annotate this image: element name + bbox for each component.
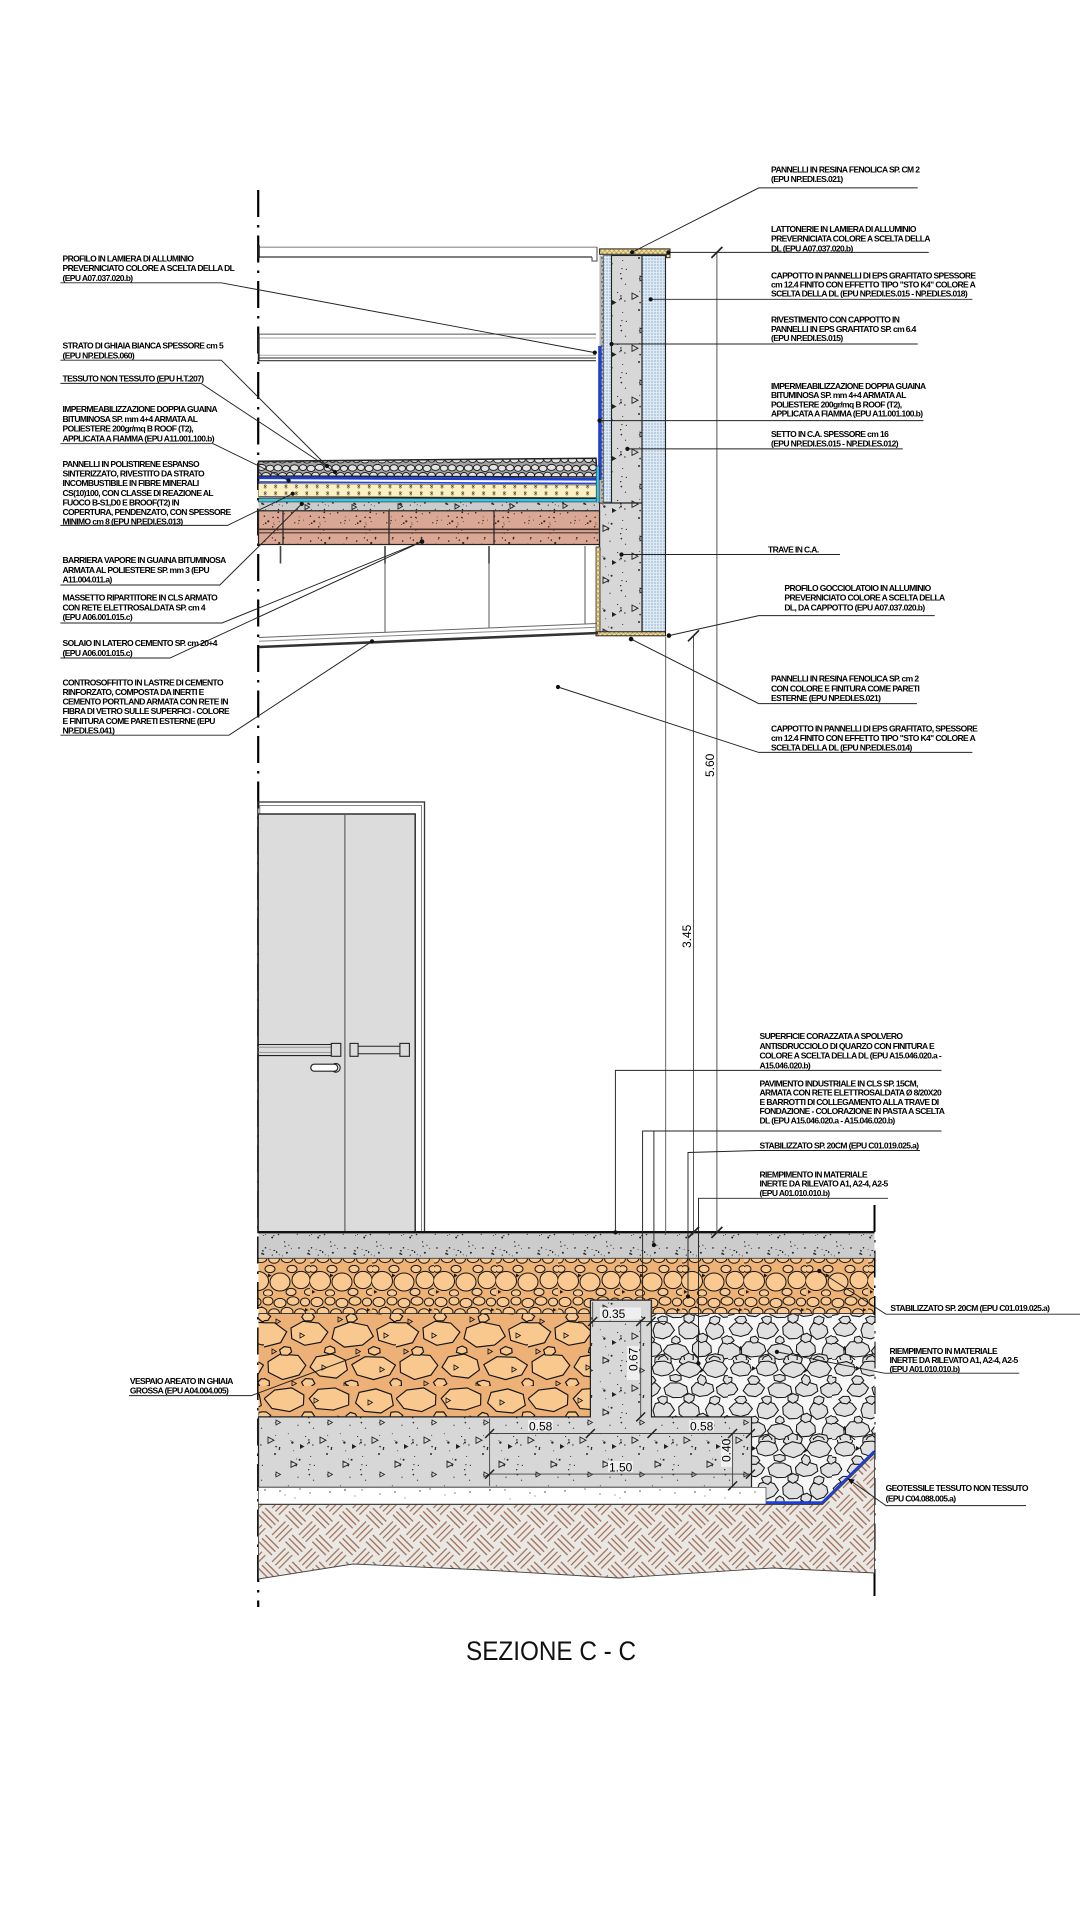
svg-text:PREVERNICIATO COLORE A SCELTA: PREVERNICIATO COLORE A SCELTA DELLA DL bbox=[63, 263, 235, 273]
svg-text:PANNELLI IN POLISTIRENE ESPANS: PANNELLI IN POLISTIRENE ESPANSO bbox=[63, 459, 200, 469]
svg-text:ESTERNE (EPU NP.EDI.ES.021): ESTERNE (EPU NP.EDI.ES.021) bbox=[771, 693, 881, 703]
svg-text:(EPU A06.001.015.c): (EPU A06.001.015.c) bbox=[63, 648, 133, 658]
svg-text:INCOMBUSTIBILE IN FIBRE MINERA: INCOMBUSTIBILE IN FIBRE MINERALI bbox=[63, 478, 199, 488]
svg-text:0.58: 0.58 bbox=[690, 1420, 714, 1434]
svg-text:STABILIZZATO SP. 20CM (EPU C01: STABILIZZATO SP. 20CM (EPU C01.019.025.a… bbox=[890, 1303, 1050, 1313]
svg-text:SCELTA DELLA DL (EPU NP.EDI.E: SCELTA DELLA DL (EPU NP.EDI.ES.015 - NP.… bbox=[771, 289, 968, 299]
svg-text:CON RETE ELETTROSALDATA SP. cm: CON RETE ELETTROSALDATA SP. cm 4 bbox=[63, 602, 206, 612]
svg-text:PROFILO IN LAMIERA DI ALLUMINI: PROFILO IN LAMIERA DI ALLUMINIO bbox=[63, 253, 195, 263]
svg-text:(EPU A07.037.020.b): (EPU A07.037.020.b) bbox=[63, 273, 134, 283]
svg-text:DL (EPU A07.037.020.b): DL (EPU A07.037.020.b) bbox=[771, 243, 854, 253]
svg-text:APPLICATA A FIAMMA (EPU A11.0: APPLICATA A FIAMMA (EPU A11.001.100.b) bbox=[771, 409, 923, 419]
svg-text:PANNELLI IN RESINA FENOLICA SP: PANNELLI IN RESINA FENOLICA SP. cm 2 bbox=[771, 674, 919, 684]
svg-text:0.58: 0.58 bbox=[529, 1420, 553, 1434]
svg-text:STRATO DI GHIAIA BIANCA SPESSO: STRATO DI GHIAIA BIANCA SPESSORE cm 5 bbox=[63, 341, 224, 351]
svg-text:MINIMO cm 8 (EPU NP.EDI.ES.013: MINIMO cm 8 (EPU NP.EDI.ES.013) bbox=[63, 517, 184, 527]
svg-text:(EPU NP.EDI.ES.060): (EPU NP.EDI.ES.060) bbox=[63, 350, 135, 360]
svg-text:5.60: 5.60 bbox=[703, 753, 717, 777]
svg-text:PROFILO GOCCIOLATOIO IN ALLUMI: PROFILO GOCCIOLATOIO IN ALLUMINIO bbox=[784, 583, 931, 593]
svg-text:CON COLORE E FINITURA COME PAR: CON COLORE E FINITURA COME PARETI bbox=[771, 683, 920, 693]
svg-text:3.45: 3.45 bbox=[680, 924, 694, 948]
svg-text:FIBRA DI VETRO SULLE SUPERFICI: FIBRA DI VETRO SULLE SUPERFICI - COLORE bbox=[63, 706, 231, 716]
svg-text:A11.004.011.a): A11.004.011.a) bbox=[63, 575, 113, 585]
svg-text:LATTONERIE IN LAMIERA DI ALLUM: LATTONERIE IN LAMIERA DI ALLUMINIO bbox=[771, 224, 917, 234]
svg-text:GROSSA (EPU A04.004.005): GROSSA (EPU A04.004.005) bbox=[130, 1386, 229, 1396]
svg-text:A15.046.020.b): A15.046.020.b) bbox=[760, 1060, 811, 1070]
svg-text:0.35: 0.35 bbox=[602, 1307, 626, 1321]
svg-text:MASSETTO RIPARTITORE IN CLS AR: MASSETTO RIPARTITORE IN CLS ARMATO bbox=[63, 593, 219, 603]
svg-text:STABILIZZATO SP. 20CM (EPU C01: STABILIZZATO SP. 20CM (EPU C01.019.025.a… bbox=[760, 1140, 920, 1150]
svg-text:TESSUTO NON TESSUTO (EPU H.T.2: TESSUTO NON TESSUTO (EPU H.T.207) bbox=[63, 374, 205, 384]
svg-text:SUPERFICIE CORAZZATA A SPOLVER: SUPERFICIE CORAZZATA A SPOLVERO bbox=[760, 1031, 904, 1041]
svg-text:0.40: 0.40 bbox=[720, 1438, 734, 1462]
svg-text:PANNELLI IN RESINA FENOLICA SP: PANNELLI IN RESINA FENOLICA SP. CM 2 bbox=[771, 164, 920, 174]
svg-text:RINFORZATO, COMPOSTA DA INERTI: RINFORZATO, COMPOSTA DA INERTI E bbox=[63, 687, 205, 697]
svg-text:SOLAIO IN LATERO CEMENTO SP. c: SOLAIO IN LATERO CEMENTO SP. cm 20+4 bbox=[63, 638, 218, 648]
svg-text:(EPU A01.010.010.b): (EPU A01.010.010.b) bbox=[890, 1364, 961, 1374]
svg-text:IMPERMEABILIZZAZIONE DOPPIA GU: IMPERMEABILIZZAZIONE DOPPIA GUAINA bbox=[63, 404, 218, 414]
svg-text:COPERTURA, PENDENZATO, CON SPE: COPERTURA, PENDENZATO, CON SPESSORE bbox=[63, 507, 232, 517]
svg-text:VESPAIO AREATO IN GHIAIA: VESPAIO AREATO IN GHIAIA bbox=[130, 1376, 233, 1386]
svg-text:COLORE A SCELTA DELLA DL (EPU: COLORE A SCELTA DELLA DL (EPU A15.046.02… bbox=[760, 1051, 942, 1061]
svg-text:DL, DA CAPPOTTO (EPU A07.037.0: DL, DA CAPPOTTO (EPU A07.037.020.b) bbox=[784, 602, 925, 612]
svg-text:(EPU A01.010.010.b): (EPU A01.010.010.b) bbox=[760, 1188, 831, 1198]
svg-text:(EPU NP.EDI.ES.015): (EPU NP.EDI.ES.015) bbox=[771, 333, 843, 343]
svg-text:CS(10)100, CON CLASSE DI REAZI: CS(10)100, CON CLASSE DI REAZIONE AL bbox=[63, 488, 214, 498]
svg-text:POLIESTERE 200gr/mq B ROOF (T2: POLIESTERE 200gr/mq B ROOF (T2), bbox=[63, 424, 194, 434]
svg-text:TRAVE IN C.A.: TRAVE IN C.A. bbox=[768, 545, 819, 555]
svg-text:BITUMINOSA SP. mm 4+4 ARMATA A: BITUMINOSA SP. mm 4+4 ARMATA AL bbox=[63, 414, 198, 424]
svg-text:GEOTESSILE TESSUTO NON TESSUTO: GEOTESSILE TESSUTO NON TESSUTO bbox=[886, 1483, 1029, 1493]
svg-text:NP.EDI.ES.041): NP.EDI.ES.041) bbox=[63, 725, 116, 735]
svg-text:ARMATA AL POLIESTERE SP. mm 3: ARMATA AL POLIESTERE SP. mm 3 (EPU bbox=[63, 565, 210, 575]
svg-text:BARRIERA VAPORE IN GUAINA BITU: BARRIERA VAPORE IN GUAINA BITUMINOSA bbox=[63, 555, 227, 565]
svg-text:(EPU A06.001.015.c): (EPU A06.001.015.c) bbox=[63, 612, 133, 622]
svg-text:SCELTA DELLA DL (EPU NP.EDI.ES: SCELTA DELLA DL (EPU NP.EDI.ES.014) bbox=[771, 743, 912, 753]
svg-text:CAPPOTTO IN PANNELLI DI EPS GR: CAPPOTTO IN PANNELLI DI EPS GRAFITATO, S… bbox=[771, 723, 978, 733]
svg-text:APPLICATA A FIAMMA (EPU A11.00: APPLICATA A FIAMMA (EPU A11.001.100.b) bbox=[63, 434, 215, 444]
svg-text:DL (EPU A15.046.020.a - A15.04: DL (EPU A15.046.020.a - A15.046.020.b) bbox=[760, 1115, 896, 1125]
svg-text:PREVERNICIATO COLORE A SCELTA: PREVERNICIATO COLORE A SCELTA DELLA bbox=[784, 593, 945, 603]
svg-text:CEMENTO PORTLAND ARMATA CON RE: CEMENTO PORTLAND ARMATA CON RETE IN bbox=[63, 697, 229, 707]
svg-text:(EPU NP.EDI.ES.015 - NP.EDI.ES: (EPU NP.EDI.ES.015 - NP.EDI.ES.012) bbox=[771, 438, 899, 448]
svg-text:(EPU NP.EDI.ES.021): (EPU NP.EDI.ES.021) bbox=[771, 174, 843, 184]
svg-text:CONTROSOFFITTO IN LASTRE DI CE: CONTROSOFFITTO IN LASTRE DI CEMENTO bbox=[63, 677, 224, 687]
svg-text:1.50: 1.50 bbox=[609, 1461, 633, 1475]
svg-text:cm 12.4 FINITO CON EFFETTO TI: cm 12.4 FINITO CON EFFETTO TIPO "STO K4"… bbox=[771, 733, 976, 743]
svg-text:(EPU C04.088.005.a): (EPU C04.088.005.a) bbox=[886, 1494, 957, 1504]
svg-text:SINTERIZZATO, RIVESTITO DA STR: SINTERIZZATO, RIVESTITO DA STRATO bbox=[63, 469, 206, 479]
svg-text:0.67: 0.67 bbox=[627, 1347, 641, 1371]
svg-text:SEZIONE C - C: SEZIONE C - C bbox=[466, 1636, 636, 1666]
svg-text:ANTISDRUCCIOLO DI QUARZO CON F: ANTISDRUCCIOLO DI QUARZO CON FINITURA E bbox=[760, 1041, 936, 1051]
svg-text:E FINITURA COME PARETI ESTERNE: E FINITURA COME PARETI ESTERNE (EPU bbox=[63, 716, 216, 726]
svg-text:PREVERNICIATA COLORE A SCELTA: PREVERNICIATA COLORE A SCELTA DELLA bbox=[771, 234, 930, 244]
svg-text:FUOCO B-S1,D0 E BROOF(T2) IN: FUOCO B-S1,D0 E BROOF(T2) IN bbox=[63, 497, 180, 507]
